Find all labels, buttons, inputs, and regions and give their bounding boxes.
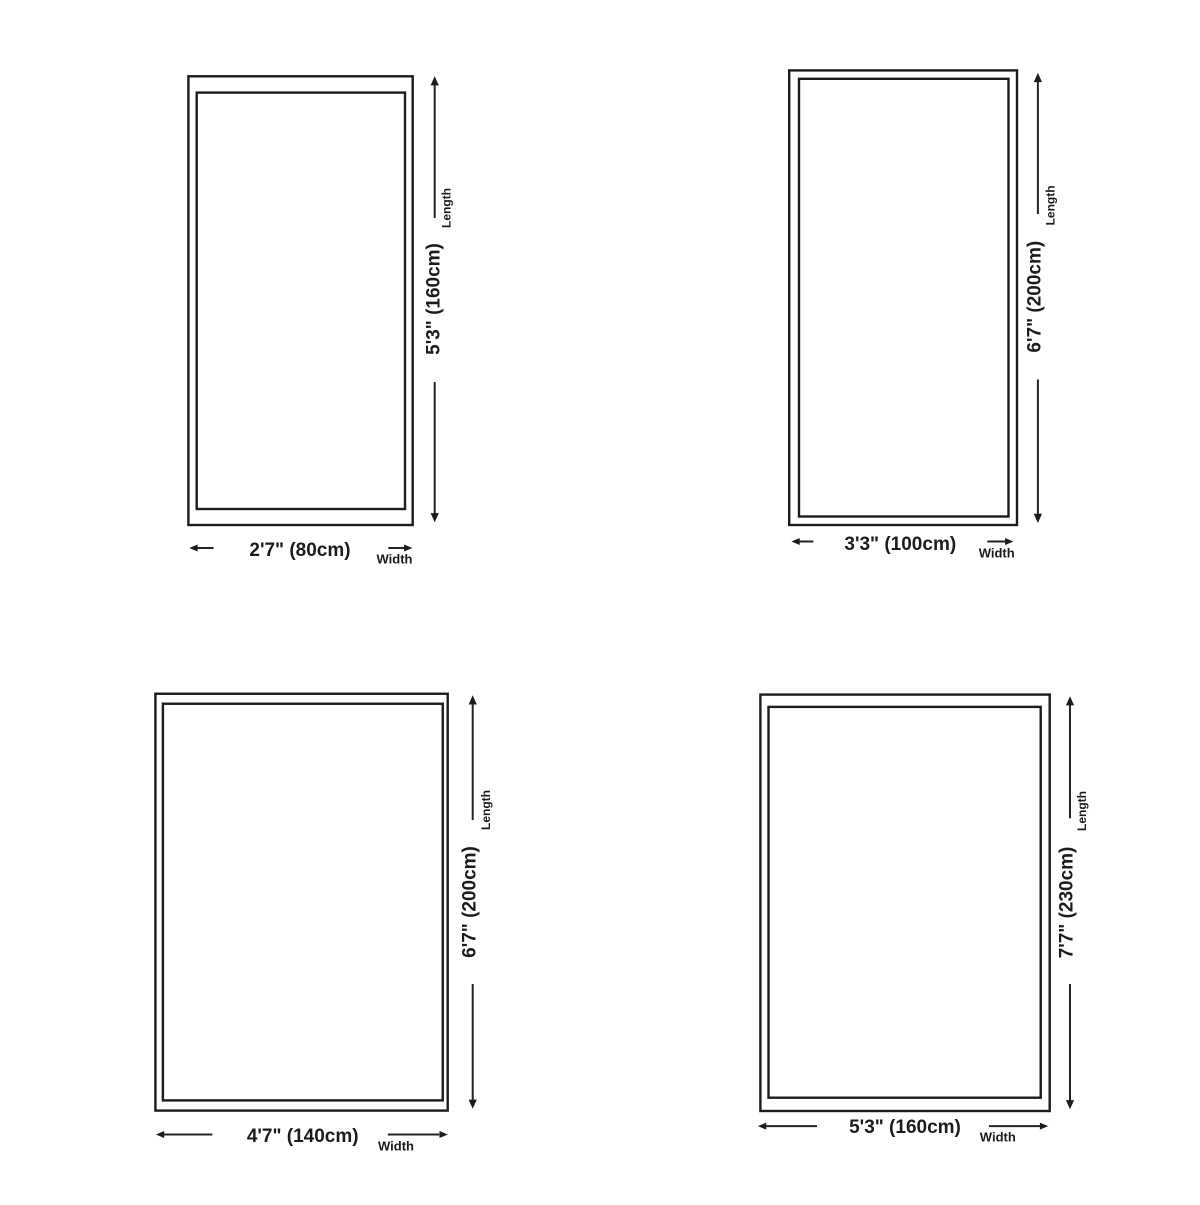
svg-text:Width: Width (378, 1139, 414, 1154)
svg-text:2'7" (80cm): 2'7" (80cm) (249, 540, 350, 561)
svg-text:Length: Length (440, 188, 454, 228)
svg-text:4'7" (140cm): 4'7" (140cm) (247, 1126, 359, 1147)
svg-text:Length: Length (1043, 185, 1057, 225)
svg-text:Width: Width (377, 552, 413, 567)
svg-text:5'3" (160cm): 5'3" (160cm) (424, 243, 445, 355)
svg-text:6'7" (200cm): 6'7" (200cm) (1025, 241, 1046, 353)
svg-text:6'7" (200cm): 6'7" (200cm) (460, 846, 481, 958)
svg-text:7'7" (230cm): 7'7" (230cm) (1057, 847, 1078, 959)
svg-text:Width: Width (980, 1130, 1016, 1145)
svg-text:Width: Width (979, 546, 1015, 561)
svg-text:Length: Length (1075, 791, 1089, 831)
svg-text:3'3" (100cm): 3'3" (100cm) (844, 534, 956, 555)
svg-text:5'3" (160cm): 5'3" (160cm) (849, 1117, 961, 1138)
svg-text:Length: Length (479, 790, 493, 830)
